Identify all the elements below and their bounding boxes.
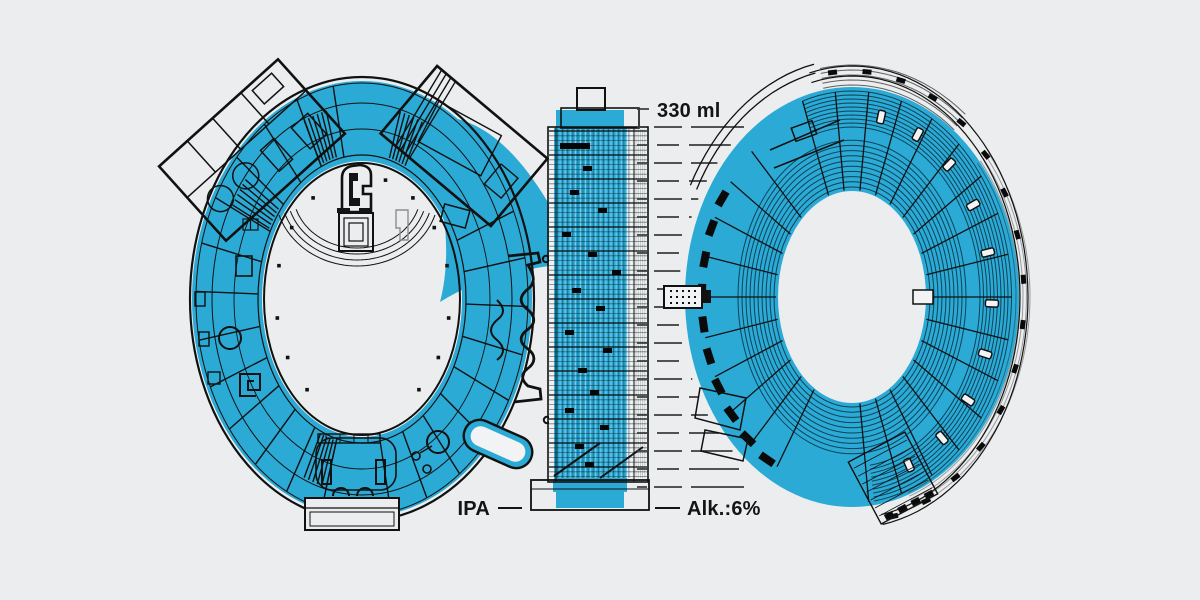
column-dot xyxy=(411,196,415,200)
entrance-dot xyxy=(694,290,696,292)
entrance-dot xyxy=(670,302,672,304)
open-window xyxy=(575,444,584,449)
digit-one-tower-elevation xyxy=(531,88,649,510)
blueprint-canvas: 330 ml IPA Alk.:6% xyxy=(0,0,1200,600)
column-dot xyxy=(286,356,290,360)
open-window xyxy=(598,208,607,213)
arcade-tick xyxy=(862,69,871,75)
digit-zero-right-stadium-plan xyxy=(664,64,1030,524)
open-window xyxy=(578,368,587,373)
arcade-tick xyxy=(1014,230,1021,240)
open-window xyxy=(570,190,579,195)
column-dot xyxy=(311,196,315,200)
tower-blue-cap xyxy=(556,110,624,128)
column-dot xyxy=(447,316,451,320)
column-dot xyxy=(432,226,436,230)
column-dot xyxy=(277,264,281,268)
entrance-dot xyxy=(676,290,678,292)
open-window xyxy=(560,143,590,149)
open-window xyxy=(590,390,599,395)
column-dot xyxy=(290,226,294,230)
arcade-tick xyxy=(1021,275,1027,284)
entrance-dot xyxy=(676,302,678,304)
column-dot xyxy=(276,316,280,320)
entrance-dot xyxy=(682,296,684,298)
column-dot xyxy=(305,388,309,392)
open-window xyxy=(572,288,581,293)
open-window xyxy=(603,348,612,353)
column-dot xyxy=(417,388,421,392)
volume-label: 330 ml xyxy=(657,100,720,122)
column-dot xyxy=(384,178,388,182)
blueprint-010-artwork: 330 ml IPA Alk.:6% xyxy=(0,0,1200,600)
open-window xyxy=(596,306,605,311)
tower-blue-base xyxy=(556,480,624,508)
tower-penthouse xyxy=(577,88,605,110)
entrance-dot xyxy=(670,296,672,298)
entrance-dot xyxy=(688,290,690,292)
entrance-dot xyxy=(676,296,678,298)
stair-marker xyxy=(985,300,998,307)
entrance-dot xyxy=(688,296,690,298)
entrance-dot xyxy=(694,302,696,304)
open-window xyxy=(562,232,571,237)
column-dot xyxy=(437,356,441,360)
entrance-dot xyxy=(694,296,696,298)
digit-zero-left-floorplan xyxy=(159,59,550,530)
open-window xyxy=(565,330,574,335)
open-window xyxy=(588,252,597,257)
open-window xyxy=(600,425,609,430)
open-window xyxy=(565,408,574,413)
right-zero-inner-booth xyxy=(913,290,933,304)
entrance-dot xyxy=(682,302,684,304)
alcohol-label: Alk.:6% xyxy=(687,498,761,520)
open-window xyxy=(583,166,592,171)
open-window xyxy=(585,462,594,467)
entrance-dot xyxy=(688,302,690,304)
style-label: IPA xyxy=(458,498,490,520)
column-dot xyxy=(445,264,449,268)
entrance-dot xyxy=(682,290,684,292)
open-window xyxy=(612,270,621,275)
arcade-tick xyxy=(828,69,838,75)
left-zero-monument xyxy=(337,165,408,251)
entrance-dot xyxy=(670,290,672,292)
